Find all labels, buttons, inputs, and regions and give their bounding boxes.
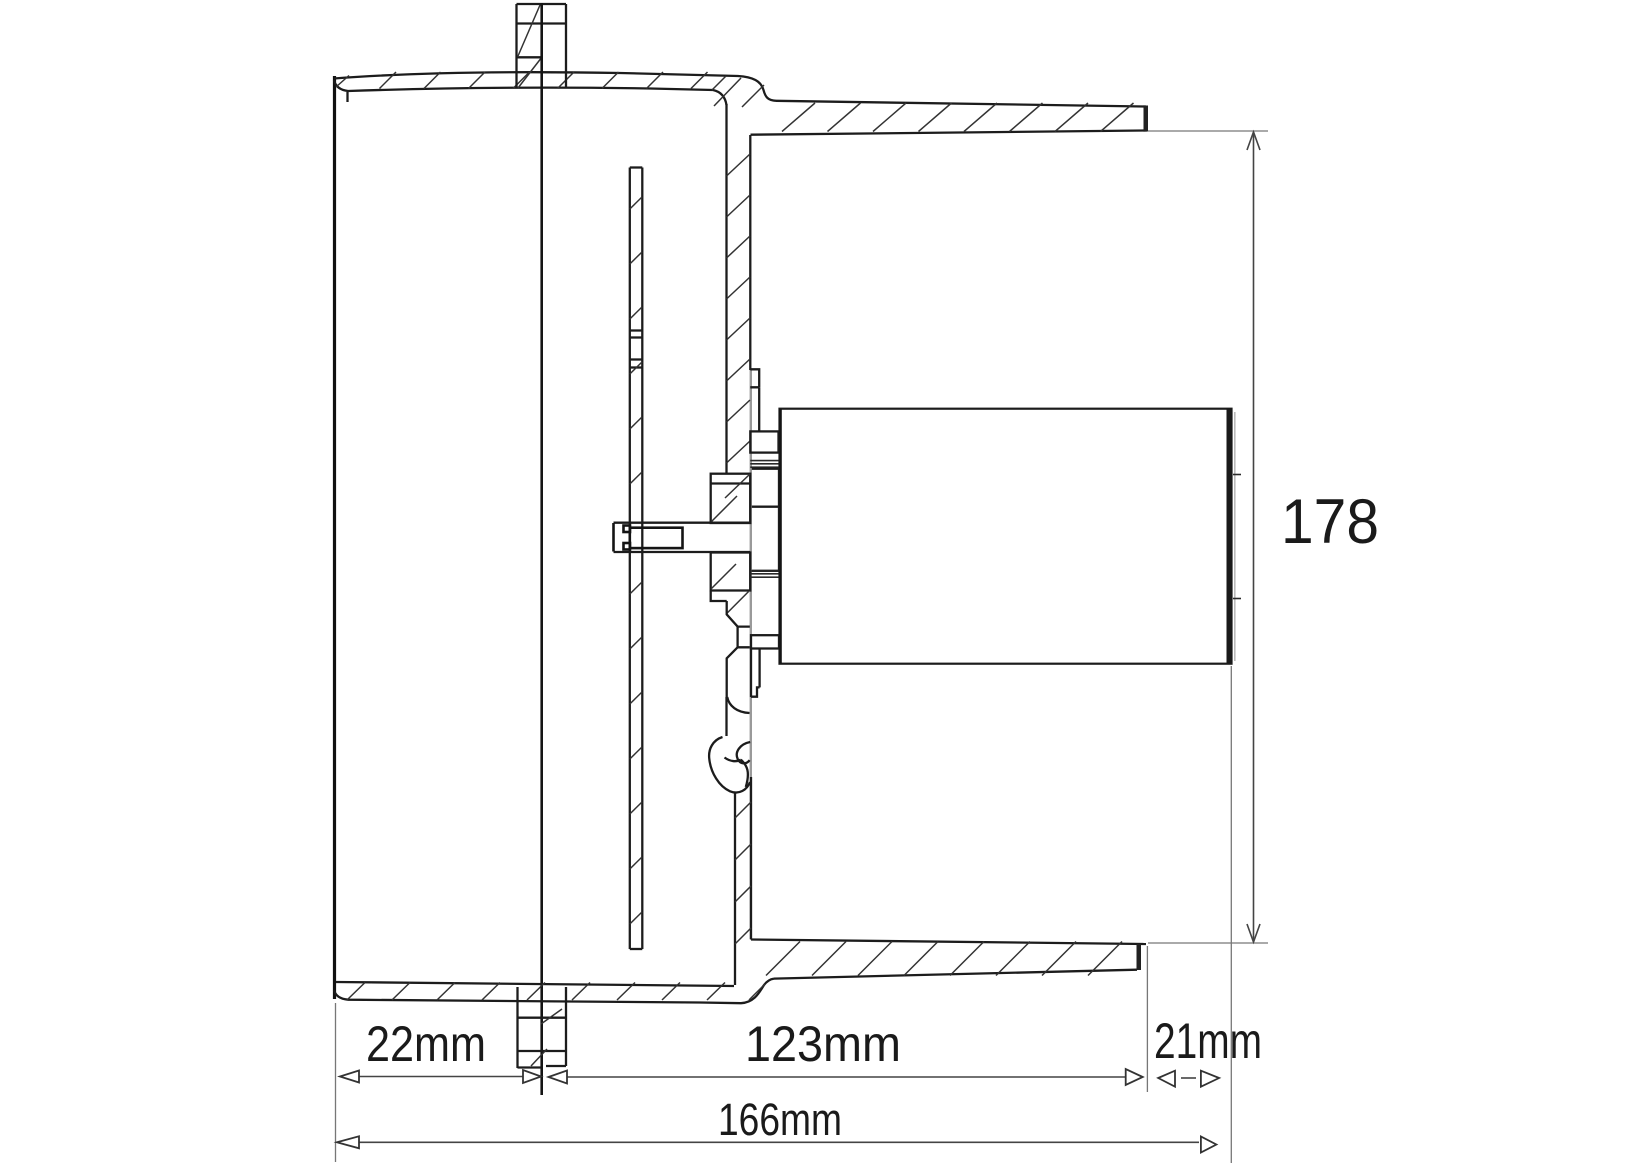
svg-text:21mm: 21mm — [1154, 1013, 1262, 1069]
svg-text:123mm: 123mm — [745, 1016, 901, 1072]
svg-text:22mm: 22mm — [366, 1016, 486, 1072]
svg-text:178: 178 — [1281, 487, 1379, 557]
svg-text:166mm: 166mm — [718, 1094, 842, 1145]
